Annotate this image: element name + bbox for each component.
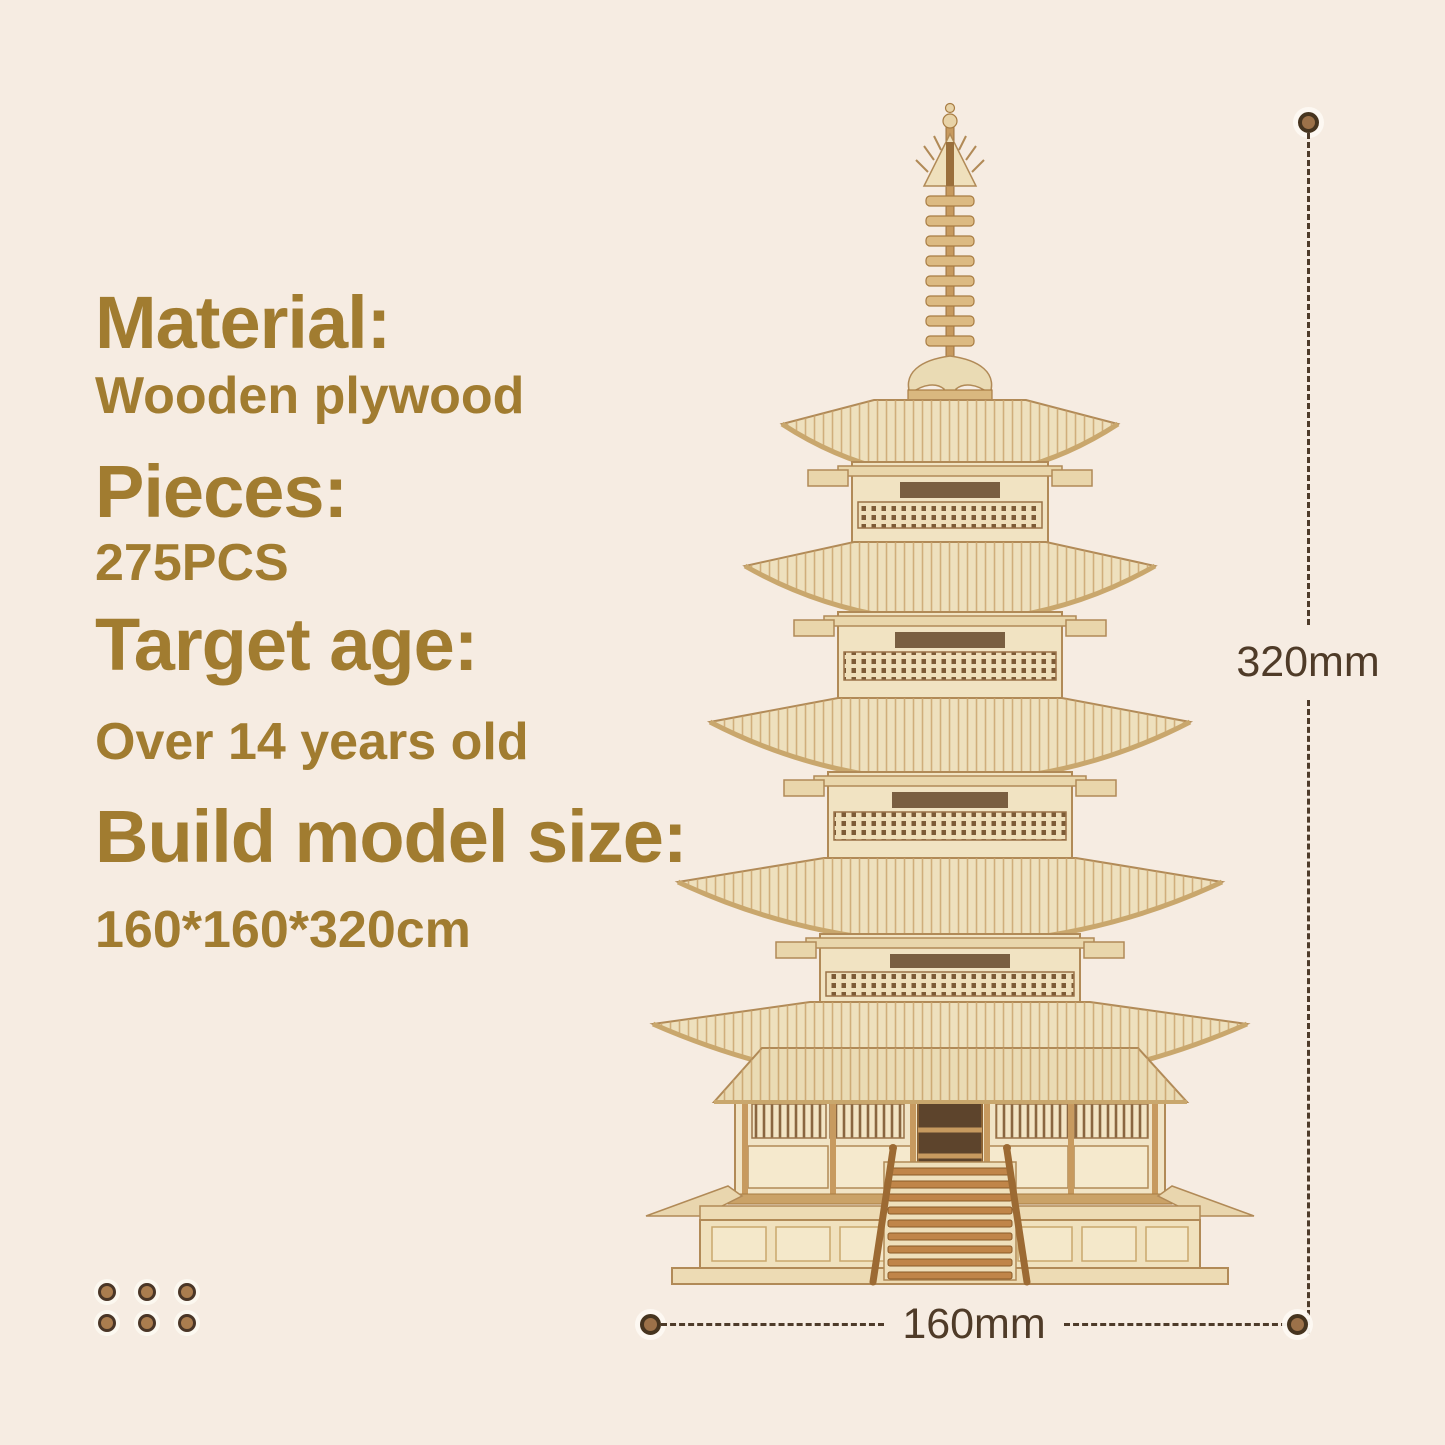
dimension-dashed-line bbox=[1307, 133, 1310, 625]
dimension-endpoint-dot bbox=[1298, 112, 1319, 133]
decorative-dot bbox=[178, 1283, 196, 1301]
pagoda-level-3 bbox=[784, 772, 1116, 864]
dimension-dashed-line bbox=[1307, 700, 1310, 1334]
decorative-dot bbox=[98, 1283, 116, 1301]
spec-value: 275PCS bbox=[95, 537, 347, 589]
width-dimension-label: 160mm bbox=[902, 1303, 1045, 1346]
spec-heading: Material: bbox=[95, 286, 524, 360]
dimension-dashed-line bbox=[1064, 1323, 1287, 1326]
height-dimension: 320mm bbox=[1284, 112, 1332, 1334]
pagoda-roof-2 bbox=[745, 542, 1155, 622]
pagoda-staircase bbox=[873, 1144, 1027, 1282]
spec-heading: Pieces: bbox=[95, 455, 347, 529]
pagoda-roof-4 bbox=[678, 858, 1222, 944]
dimension-dashed-line bbox=[661, 1323, 884, 1326]
spec-heading: Target age: bbox=[95, 608, 529, 682]
pagoda-level-4 bbox=[776, 934, 1124, 1010]
pagoda-level-2 bbox=[794, 612, 1106, 704]
dimension-corner-dot bbox=[1287, 1314, 1308, 1335]
decorative-dot bbox=[98, 1314, 116, 1332]
spec-heading: Build model size: bbox=[95, 800, 687, 874]
product-infographic: Material: Wooden plywood Pieces: 275PCS … bbox=[0, 0, 1445, 1445]
spec-section-build-size: Build model size: 160*160*320cm bbox=[95, 800, 687, 956]
decorative-dot bbox=[178, 1314, 196, 1332]
width-dimension: 160mm bbox=[640, 1304, 1308, 1344]
spec-section-material: Material: Wooden plywood bbox=[95, 286, 524, 422]
pagoda-spire bbox=[908, 104, 992, 403]
spec-section-target-age: Target age: Over 14 years old bbox=[95, 608, 529, 768]
height-dimension-label: 320mm bbox=[1236, 641, 1379, 684]
pagoda-roof-3 bbox=[710, 698, 1190, 782]
spec-value: Wooden plywood bbox=[95, 370, 524, 422]
dimension-endpoint-dot bbox=[640, 1314, 661, 1335]
decorative-dot-grid bbox=[98, 1283, 196, 1332]
pagoda-level-1 bbox=[808, 462, 1092, 548]
spec-value: Over 14 years old bbox=[95, 716, 529, 768]
decorative-dot bbox=[138, 1314, 156, 1332]
spec-value: 160*160*320cm bbox=[95, 904, 687, 956]
decorative-dot bbox=[138, 1283, 156, 1301]
spec-section-pieces: Pieces: 275PCS bbox=[95, 455, 347, 589]
pagoda-product-image bbox=[600, 60, 1300, 1300]
